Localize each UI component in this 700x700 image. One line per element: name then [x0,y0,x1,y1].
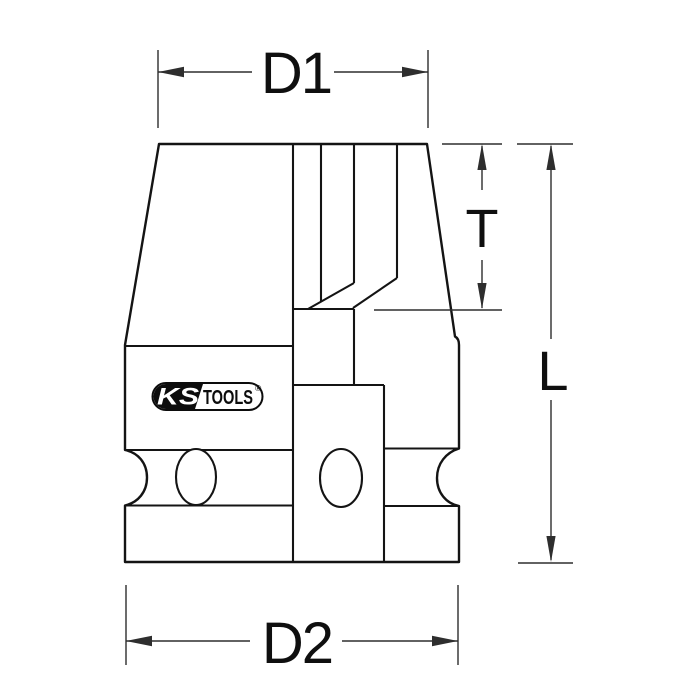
t-arrowhead-down [477,283,486,309]
l-arrowhead-down [546,536,555,562]
t-label: T [466,199,498,259]
d2-arrowhead-right [432,636,458,646]
logo-ks-text: KS [157,384,199,411]
d1-label: D1 [261,41,331,106]
d2-arrowhead-left [126,636,152,646]
dimension-d1: D1 [158,41,428,128]
logo-tools-text: TOOLS [203,387,253,409]
d1-arrowhead-left [158,67,184,77]
pin-hole-center [320,449,362,507]
ks-tools-logo: KS TOOLS ® [153,383,263,411]
socket-technical-drawing: KS TOOLS ® D1 D2 T [0,0,700,700]
socket-body [125,144,459,562]
d2-label: D2 [262,611,332,676]
t-arrowhead-up [477,144,486,170]
l-label: L [537,339,567,402]
l-arrowhead-up [546,144,555,170]
logo-registered-mark: ® [255,383,262,393]
technical-drawing-page: KS TOOLS ® D1 D2 T [0,0,700,700]
d1-arrowhead-right [402,67,428,77]
dimension-d2: D2 [126,585,458,676]
pin-hole-left [176,449,216,505]
dimension-l: L [517,144,573,563]
